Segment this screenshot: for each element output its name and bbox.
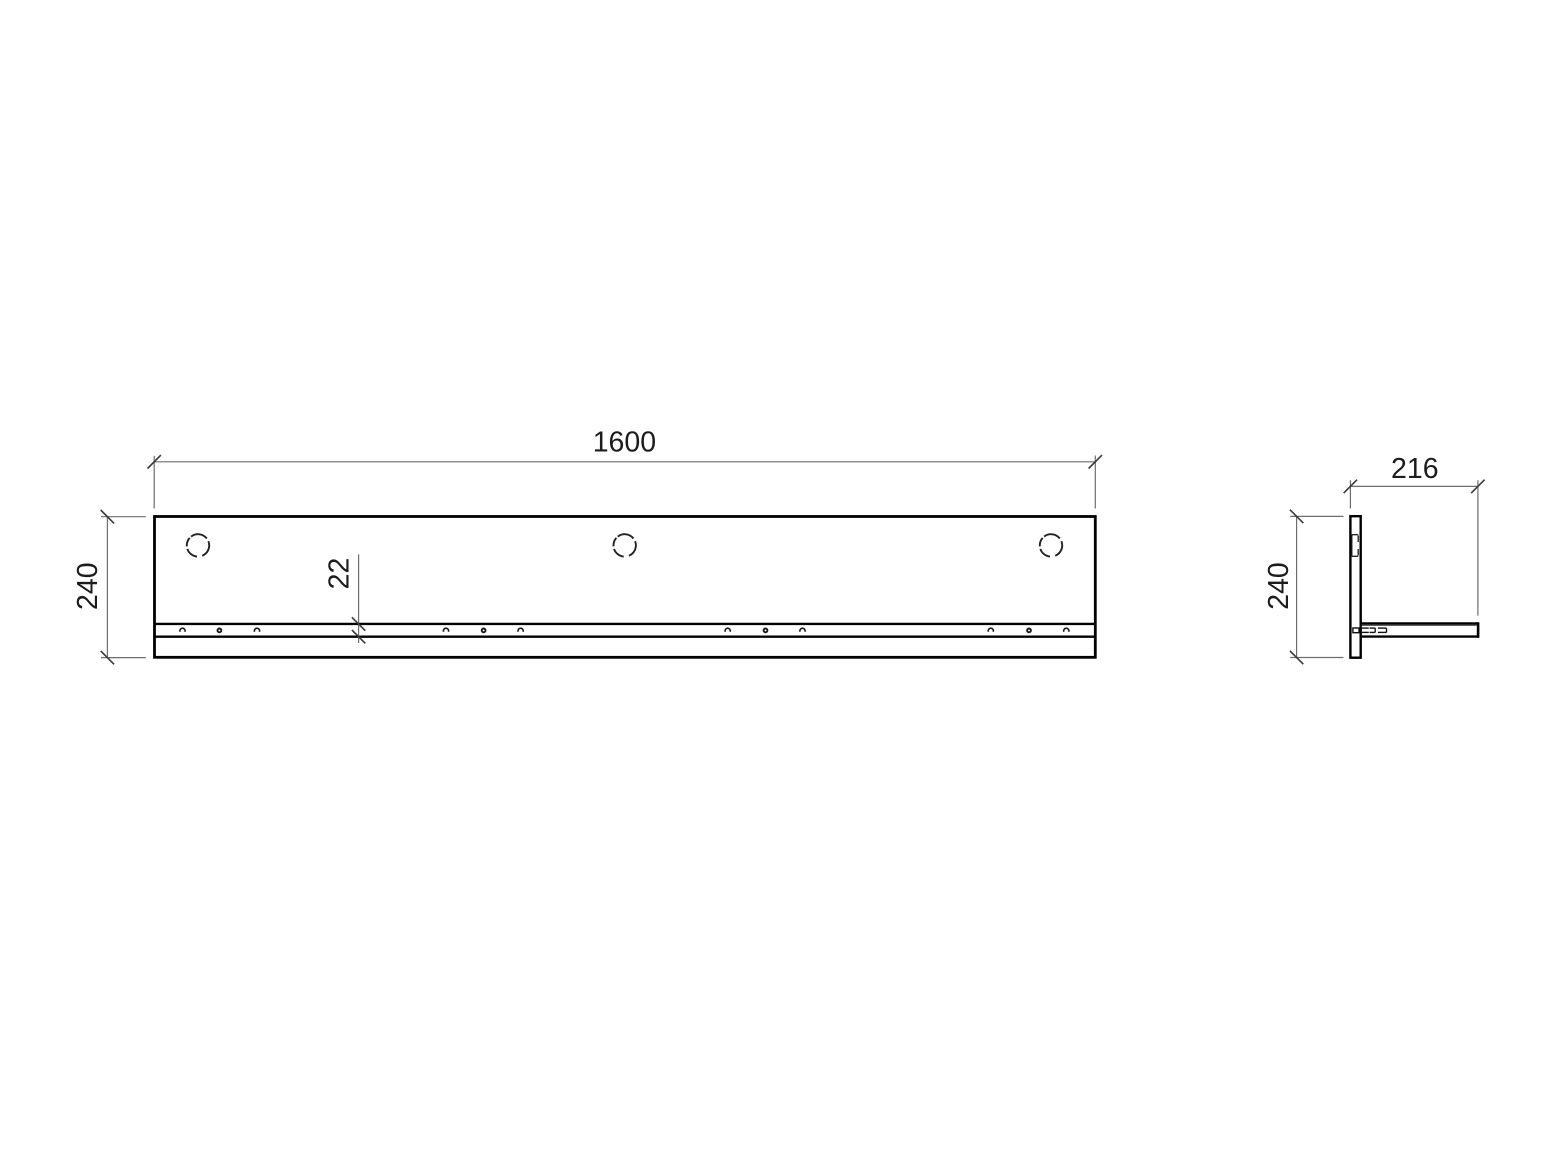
svg-text:240: 240 <box>72 562 104 610</box>
svg-text:1600: 1600 <box>593 426 656 458</box>
svg-text:22: 22 <box>324 558 356 590</box>
svg-text:240: 240 <box>1263 562 1295 610</box>
svg-text:216: 216 <box>1391 453 1439 485</box>
